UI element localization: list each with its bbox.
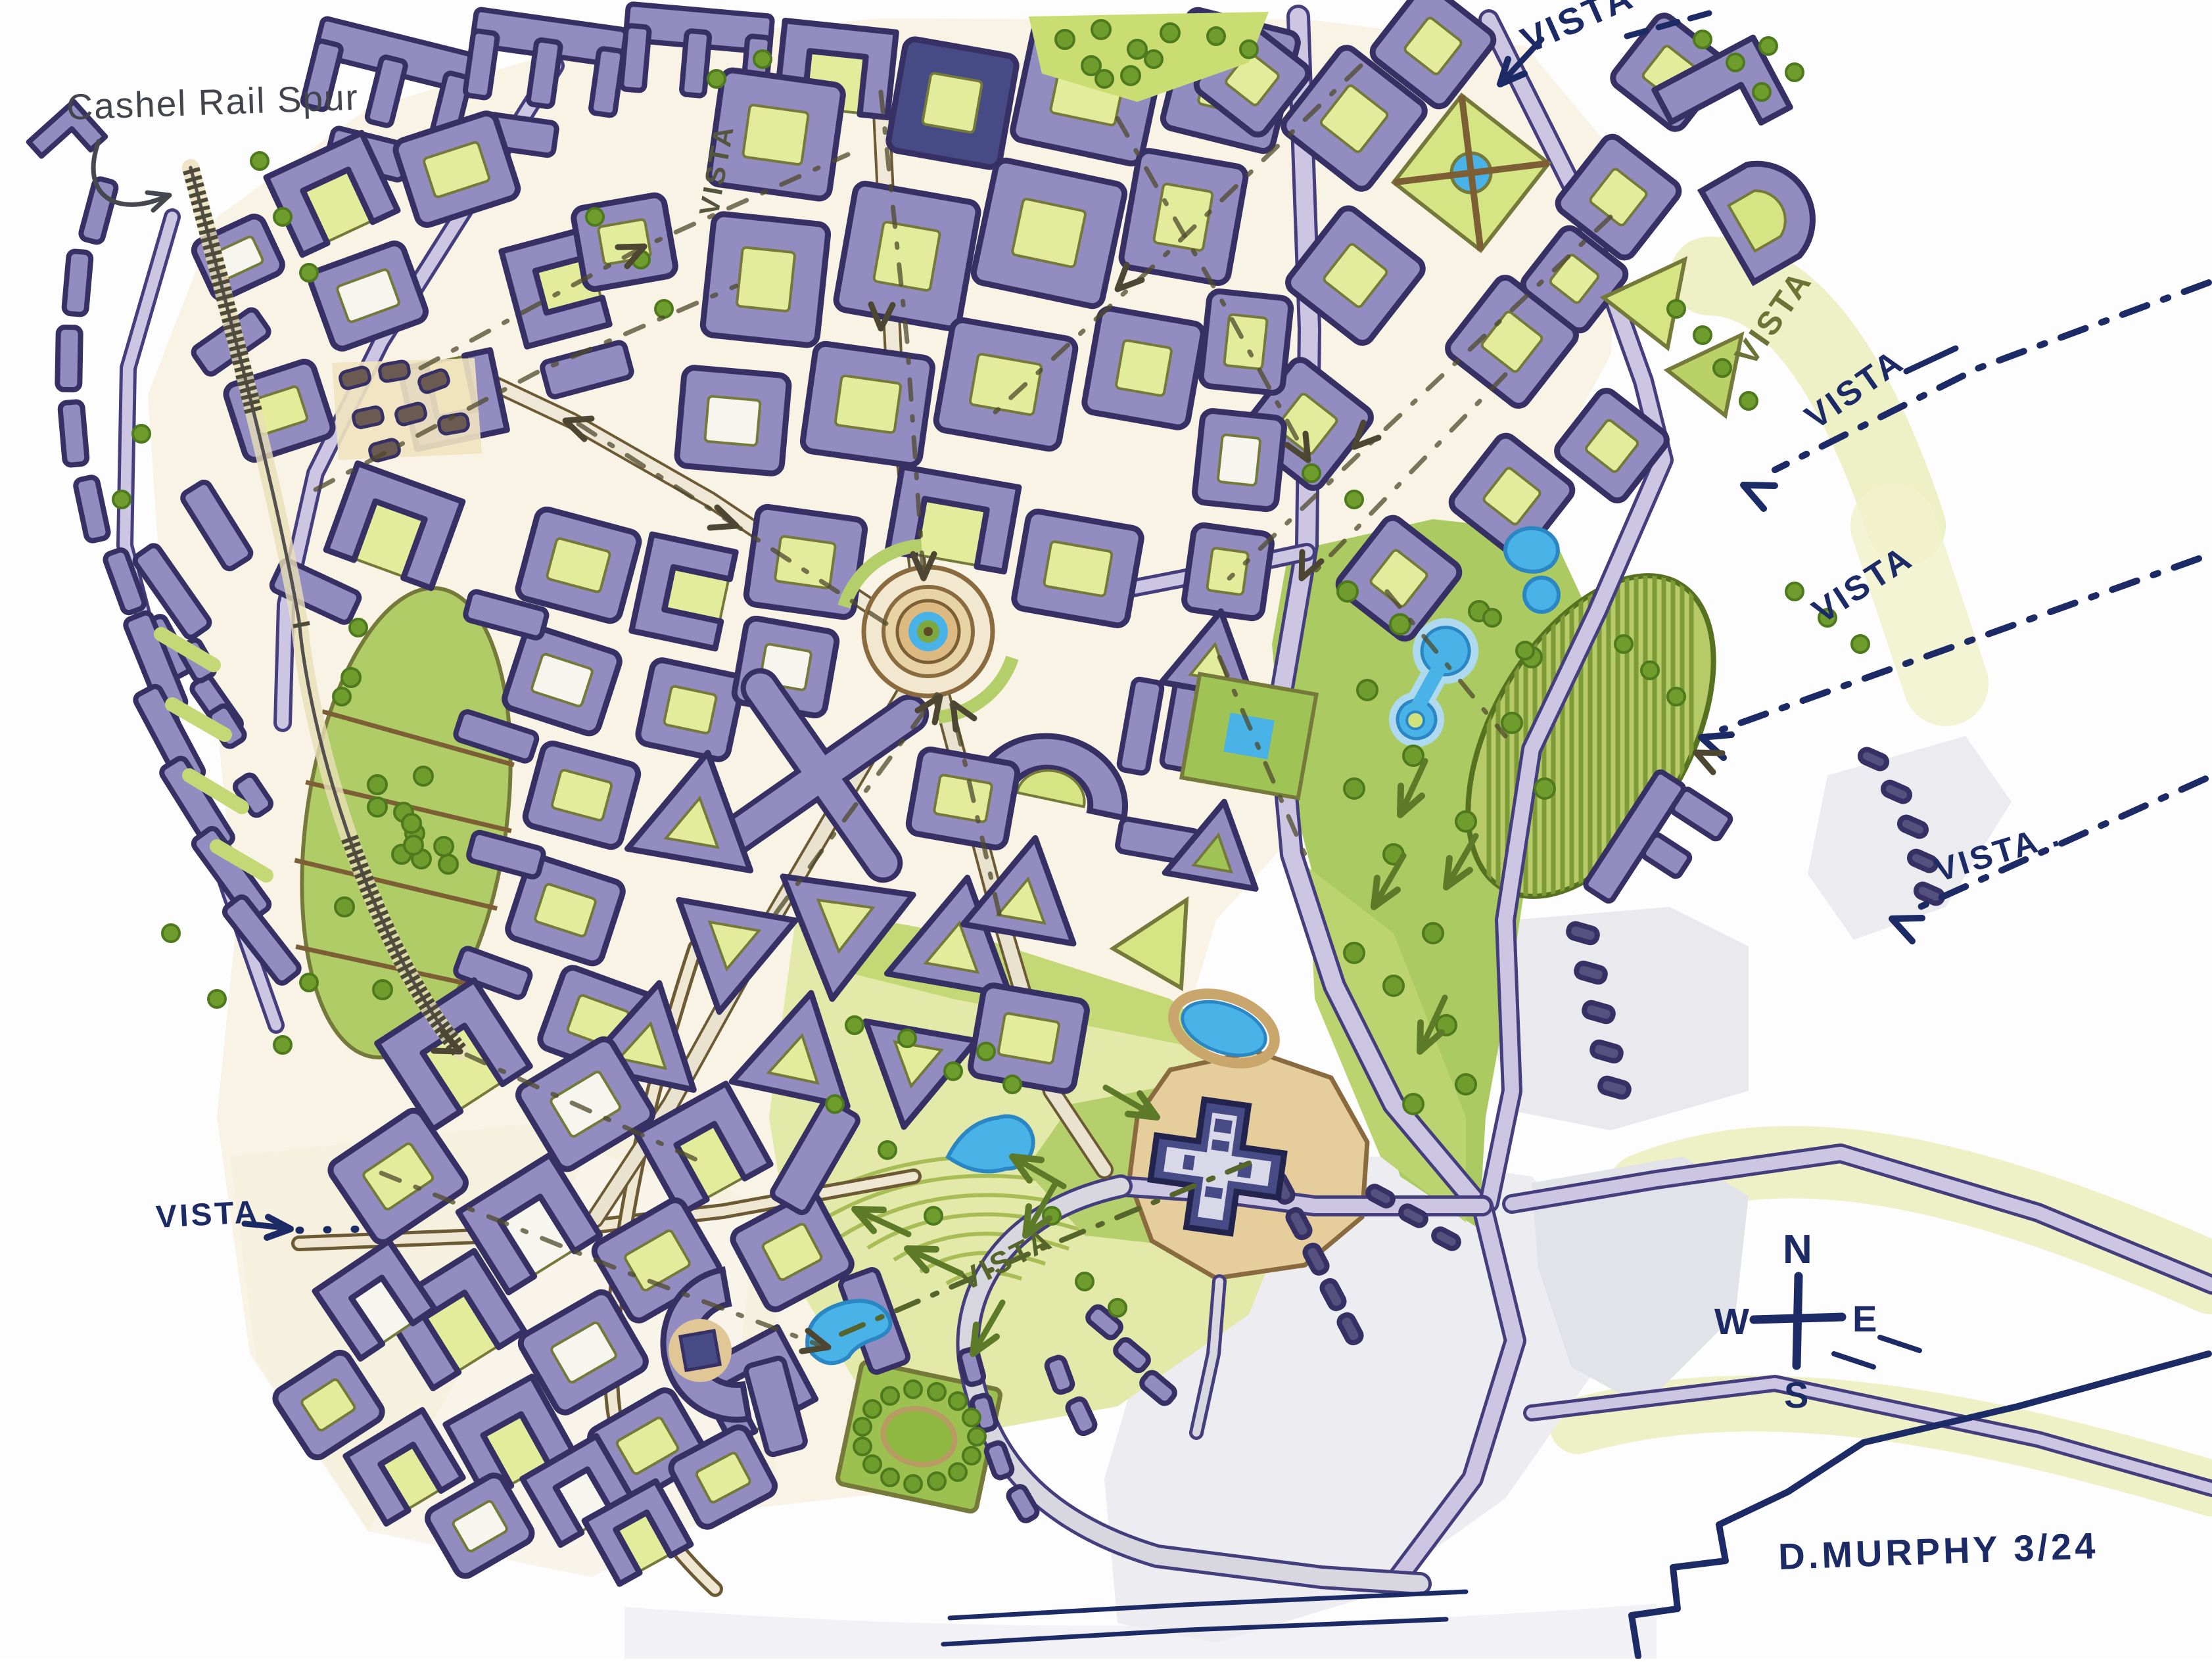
svg-text:VISTA: VISTA xyxy=(155,1195,260,1235)
svg-text:W: W xyxy=(1714,1301,1752,1342)
svg-text:E: E xyxy=(1852,1298,1879,1339)
svg-text:N: N xyxy=(1783,1227,1815,1272)
svg-text:S: S xyxy=(1784,1374,1811,1416)
